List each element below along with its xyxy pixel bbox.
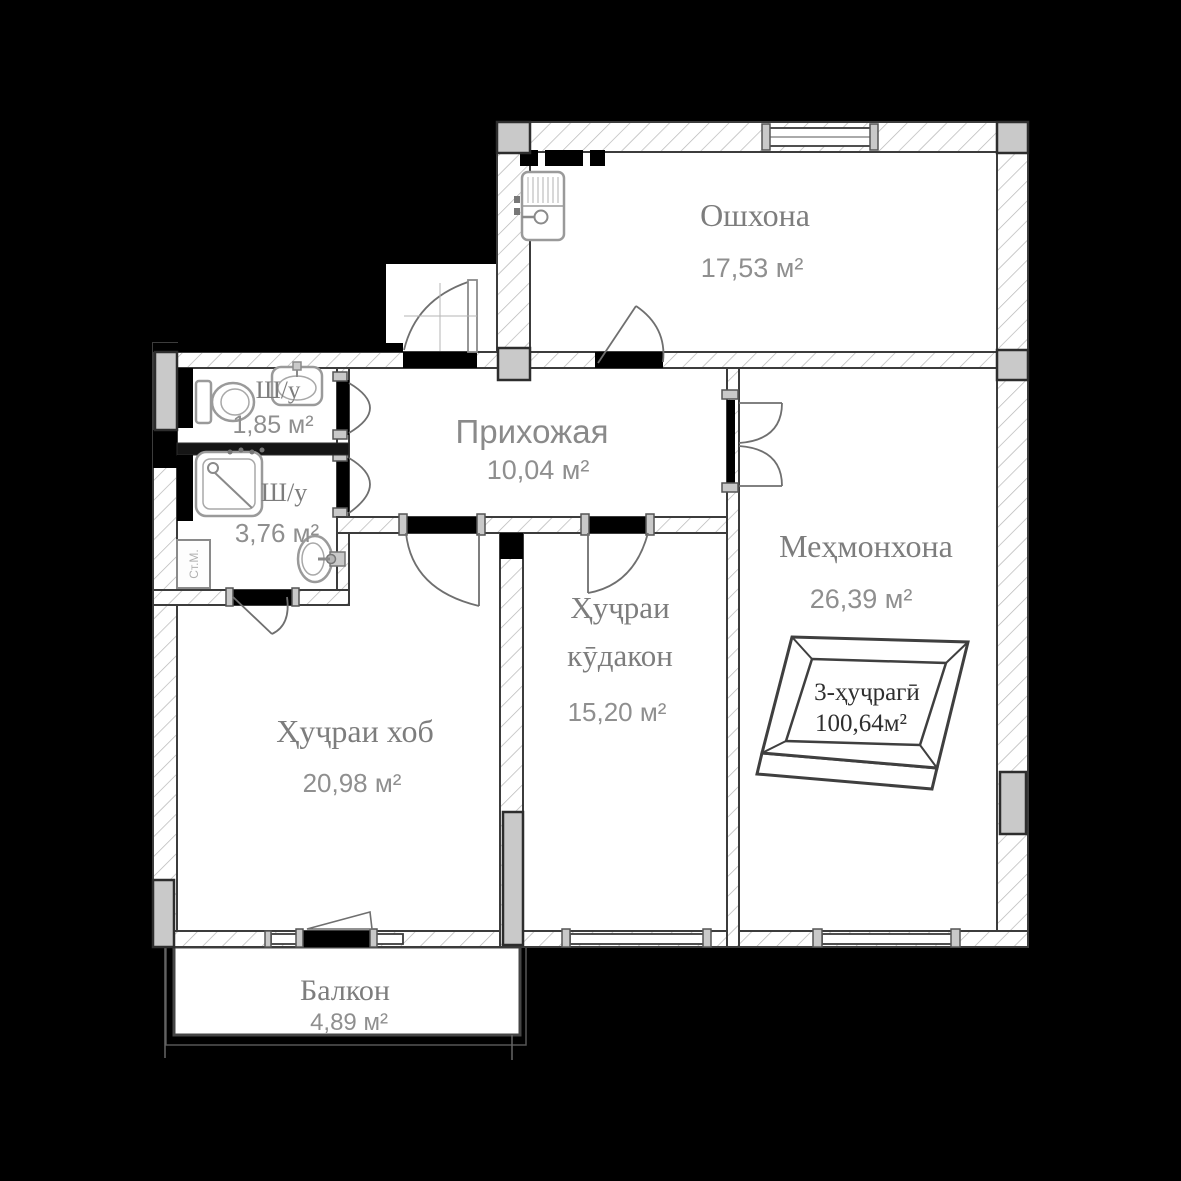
room-children: Ҳуҷраи кӯдакон 15,20 м² [567,590,673,727]
children-name-line2: кӯдакон [567,638,673,673]
kitchen-sink-icon [514,172,564,240]
washing-machine: Ст.М. [177,540,210,588]
floor-plan-drawing: Ст.М. 3-ҳуҷрагӣ 100,64м² Ошхона 17,53 м²… [0,0,1181,1181]
bedroom-area: 20,98 м² [303,768,402,798]
kitchen-area: 17,53 м² [701,253,804,283]
floor-plan-canvas: Ст.М. 3-ҳуҷрагӣ 100,64м² Ошхона 17,53 м²… [0,0,1181,1181]
hallway-name: Прихожая [456,413,609,450]
room-balcony-label: Балкон 4,89 м² [300,974,390,1036]
living-name: Меҳмонхона [779,528,953,564]
kitchen-name: Ошхона [700,197,810,233]
unit-badge: 3-ҳуҷрагӣ 100,64м² [757,637,968,789]
washing-machine-label: Ст.М. [187,549,201,579]
shower-icon [196,448,265,517]
bathroom-big-name: Ш/у [261,478,307,507]
balcony-name: Балкон [300,974,390,1007]
living-area: 26,39 м² [810,584,913,614]
children-area: 15,20 м² [568,697,667,727]
balcony-area: 4,89 м² [310,1009,388,1036]
hallway-area: 10,04 м² [487,455,590,485]
unit-total-area: 100,64м² [815,710,907,737]
unit-type-label: 3-ҳуҷрагӣ [814,679,920,706]
bathroom-small-name: Ш/у [256,377,301,404]
entrance-door-clearance [386,264,500,356]
bathroom-small-area: 1,85 м² [232,411,313,439]
bathroom-big-area: 3,76 м² [235,518,320,548]
bedroom-name: Ҳуҷраи хоб [276,713,434,749]
children-name-line1: Ҳуҷраи [570,590,669,625]
